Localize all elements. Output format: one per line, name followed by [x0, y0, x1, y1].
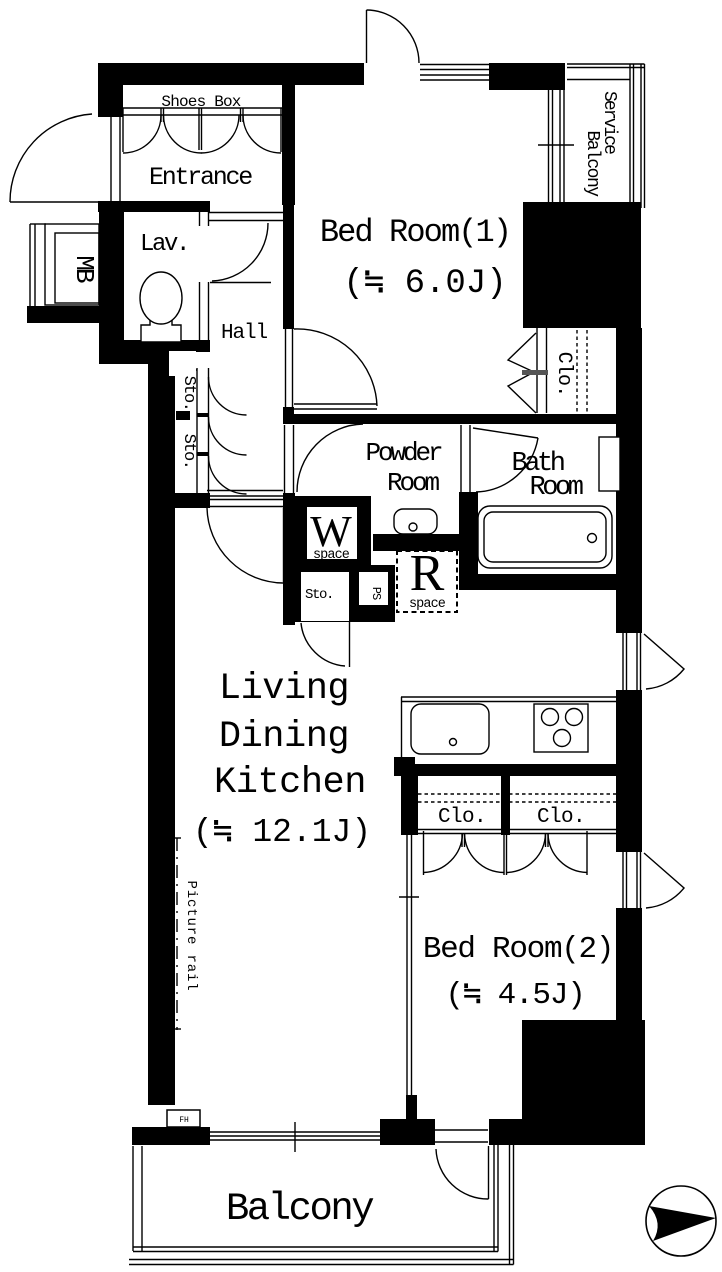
svg-text:FH: FH — [179, 1116, 189, 1125]
svg-text:R: R — [410, 545, 445, 602]
svg-text:Picture rail: Picture rail — [183, 880, 199, 991]
svg-text:Lav.: Lav. — [140, 231, 188, 258]
svg-text:Room: Room — [529, 473, 582, 503]
svg-text:Bed Room(1): Bed Room(1) — [320, 214, 510, 251]
svg-text:(≒ 4.5J): (≒ 4.5J) — [445, 978, 584, 1013]
svg-text:Sto.: Sto. — [305, 587, 333, 603]
svg-text:MB: MB — [69, 255, 99, 283]
svg-text:Balcony: Balcony — [582, 130, 602, 197]
svg-text:Kitchen: Kitchen — [214, 762, 366, 804]
svg-text:(≒ 12.1J): (≒ 12.1J) — [193, 814, 371, 851]
svg-text:space: space — [313, 548, 350, 563]
svg-text:space: space — [409, 597, 446, 612]
svg-text:Shoes Box: Shoes Box — [161, 93, 240, 111]
svg-text:Dining: Dining — [219, 716, 349, 758]
svg-text:Balcony: Balcony — [226, 1187, 374, 1231]
svg-text:Living: Living — [219, 668, 349, 710]
svg-text:Sto.: Sto. — [179, 376, 198, 411]
svg-text:Hall: Hall — [221, 322, 268, 345]
svg-text:Bed Room(2): Bed Room(2) — [423, 932, 613, 967]
svg-text:PS: PS — [369, 587, 383, 600]
svg-text:Clo.: Clo. — [537, 806, 585, 829]
svg-text:(≒ 6.0J): (≒ 6.0J) — [343, 265, 506, 303]
svg-text:Powder: Powder — [365, 438, 442, 468]
svg-text:Clo.: Clo. — [552, 352, 575, 397]
svg-text:Sto.: Sto. — [179, 434, 198, 469]
svg-text:Entrance: Entrance — [149, 163, 252, 192]
svg-text:Clo.: Clo. — [438, 806, 486, 829]
svg-text:Room: Room — [387, 468, 440, 498]
